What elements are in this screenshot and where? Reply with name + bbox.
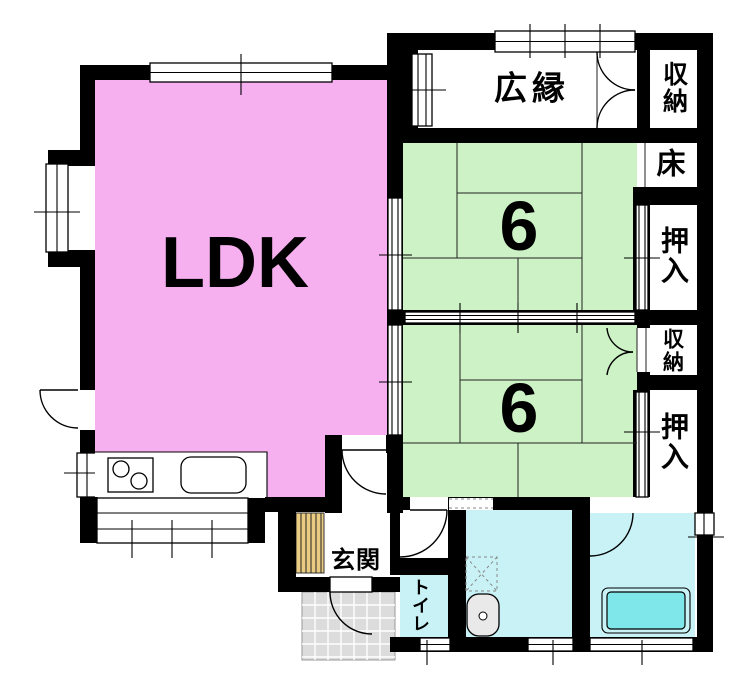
room-label-storage-north: 収納 — [661, 61, 686, 115]
entrance-porch — [302, 592, 395, 660]
room-label-genkan: 玄関 — [331, 549, 381, 573]
floor-plan: LDK 6 6 広縁 収納 床 押入 収納 押入 玄関 トイレ — [0, 0, 750, 691]
room-label-storage-middle: 収納 — [662, 328, 683, 374]
room-label-oshiire-north: 押入 — [659, 226, 687, 286]
room-label-tatami-south: 6 — [500, 373, 539, 443]
floor-plan-drawing — [0, 0, 750, 691]
room-label-oshiire-south: 押入 — [659, 412, 687, 472]
kitchen-counter — [95, 452, 267, 497]
genkan-step — [296, 513, 324, 573]
room-label-toilet: トイレ — [411, 578, 429, 632]
room-label-ldk: LDK — [161, 227, 309, 299]
room-label-hiroen: 広縁 — [494, 72, 570, 105]
room-label-toko: 床 — [656, 151, 685, 180]
sink-icon — [181, 457, 246, 493]
room-label-tatami-north: 6 — [500, 191, 539, 261]
